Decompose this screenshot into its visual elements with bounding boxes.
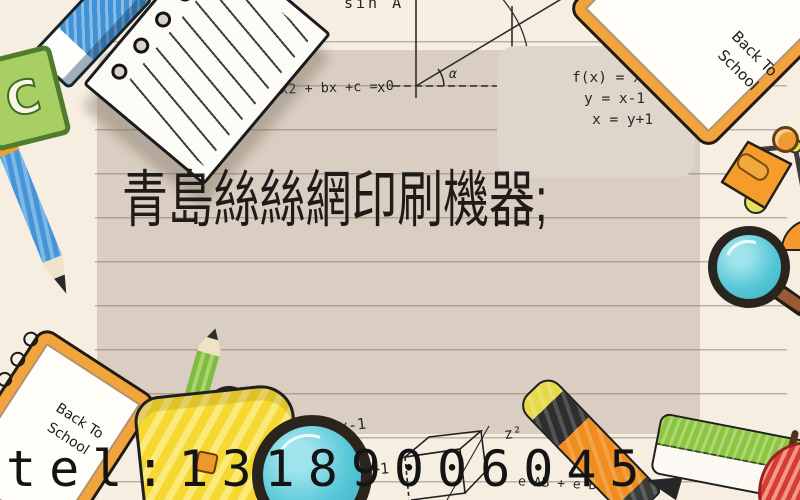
- paper-hole: [108, 60, 131, 83]
- axis-angle-label: α: [449, 67, 457, 82]
- paper-hole: [152, 8, 175, 31]
- page-title: 青島絲絲網印刷機器;: [122, 170, 548, 232]
- spiral-coil: [0, 369, 15, 390]
- sin-formula: sin A: [344, 0, 404, 12]
- fx-formula-3: x = y+1: [592, 112, 653, 128]
- magnifier-icon-right: [708, 226, 790, 308]
- letter-card-text: C: [0, 68, 46, 129]
- paper-hole: [130, 34, 153, 57]
- poster: x α sin A ax2 + bx +c = 0 3X2+ f(x) = x-…: [0, 0, 800, 500]
- pushpin-icon: [772, 126, 799, 153]
- fx-formula-2: y = x-1: [584, 91, 645, 107]
- lens-highlight: [717, 233, 777, 293]
- phone-number: tel:13189006045: [6, 444, 653, 494]
- spiral-coil: [0, 389, 2, 410]
